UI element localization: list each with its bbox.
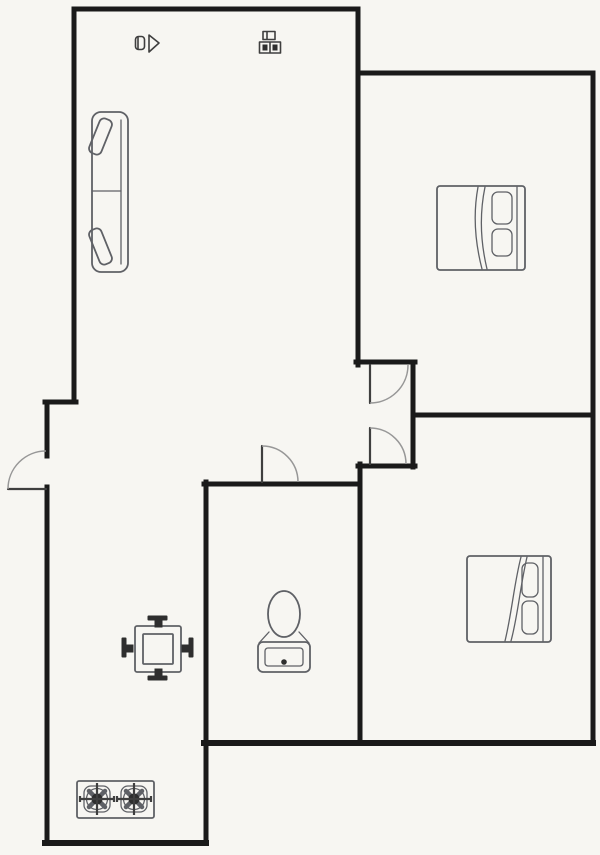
floor-plan-canvas (0, 0, 600, 855)
bedroom-top-door-swing-icon (370, 365, 408, 403)
double-bed-icon (437, 186, 525, 270)
doors (8, 365, 408, 489)
entry-door-swing-icon (8, 451, 46, 489)
double-bed-icon (467, 556, 551, 642)
plan-symbol-icon-2 (260, 32, 281, 54)
stove-burner-icon (80, 783, 114, 815)
bedroom-bottom-door-swing-icon (370, 428, 406, 464)
floor-plan (0, 0, 600, 855)
plan-symbol-icon-1 (136, 35, 160, 52)
toilet-icon (258, 591, 310, 672)
dining-table-icon (122, 616, 194, 681)
sofa-icon (88, 112, 128, 272)
stove-burner-icon (117, 783, 151, 815)
bathroom-door-swing-icon (262, 446, 298, 482)
furniture (77, 32, 551, 819)
gas-stove-icon (77, 781, 154, 818)
